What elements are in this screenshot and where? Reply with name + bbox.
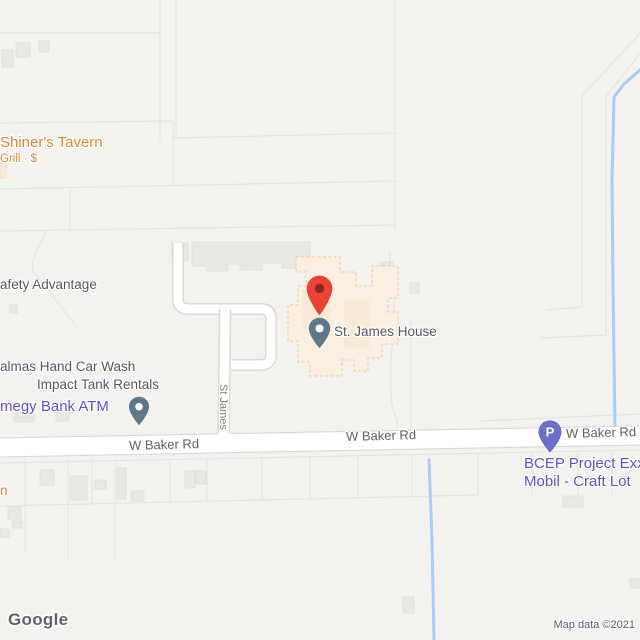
parking-pin-letter: P: [546, 425, 555, 440]
road-label-w-baker-left: W Baker Rd: [129, 437, 199, 453]
google-logo[interactable]: Google: [8, 610, 68, 630]
poi-label-impact-tank-rentals[interactable]: Impact Tank Rentals: [37, 378, 159, 393]
street-label-st-james: St James: [217, 384, 229, 430]
map-attribution: Map data ©2021: [554, 619, 636, 631]
poi-label-shiners-tavern[interactable]: Shiner's Tavern: [0, 135, 103, 152]
poi-label-safety-advantage[interactable]: afety Advantage: [0, 278, 97, 293]
road-label-w-baker-center: W Baker Rd: [346, 428, 416, 444]
st-james-house-pin[interactable]: [308, 317, 331, 349]
poi-label-amegy-bank-atm[interactable]: megy Bank ATM: [0, 399, 109, 416]
road-label-w-baker-right: W Baker Rd: [566, 425, 636, 441]
poi-label-bcep-line1[interactable]: BCEP Project Exxo: [524, 456, 640, 473]
map-canvas[interactable]: P Shiner's Tavern Grill · $ afety Advant…: [0, 0, 640, 640]
poi-label-bcep-line2[interactable]: Mobil - Craft Lot: [524, 474, 631, 491]
poi-label-st-james-house[interactable]: St. James House: [334, 325, 437, 340]
amegy-bank-pin[interactable]: [128, 396, 150, 426]
parking-pin[interactable]: P: [538, 420, 562, 453]
poi-label-cutoff: n: [0, 484, 8, 499]
destination-pin[interactable]: [306, 275, 333, 316]
large-building: [192, 242, 310, 271]
poi-category-shiners-tavern: Grill · $: [0, 153, 37, 166]
poi-label-palmas-hand-car-wash[interactable]: almas Hand Car Wash: [0, 360, 135, 375]
